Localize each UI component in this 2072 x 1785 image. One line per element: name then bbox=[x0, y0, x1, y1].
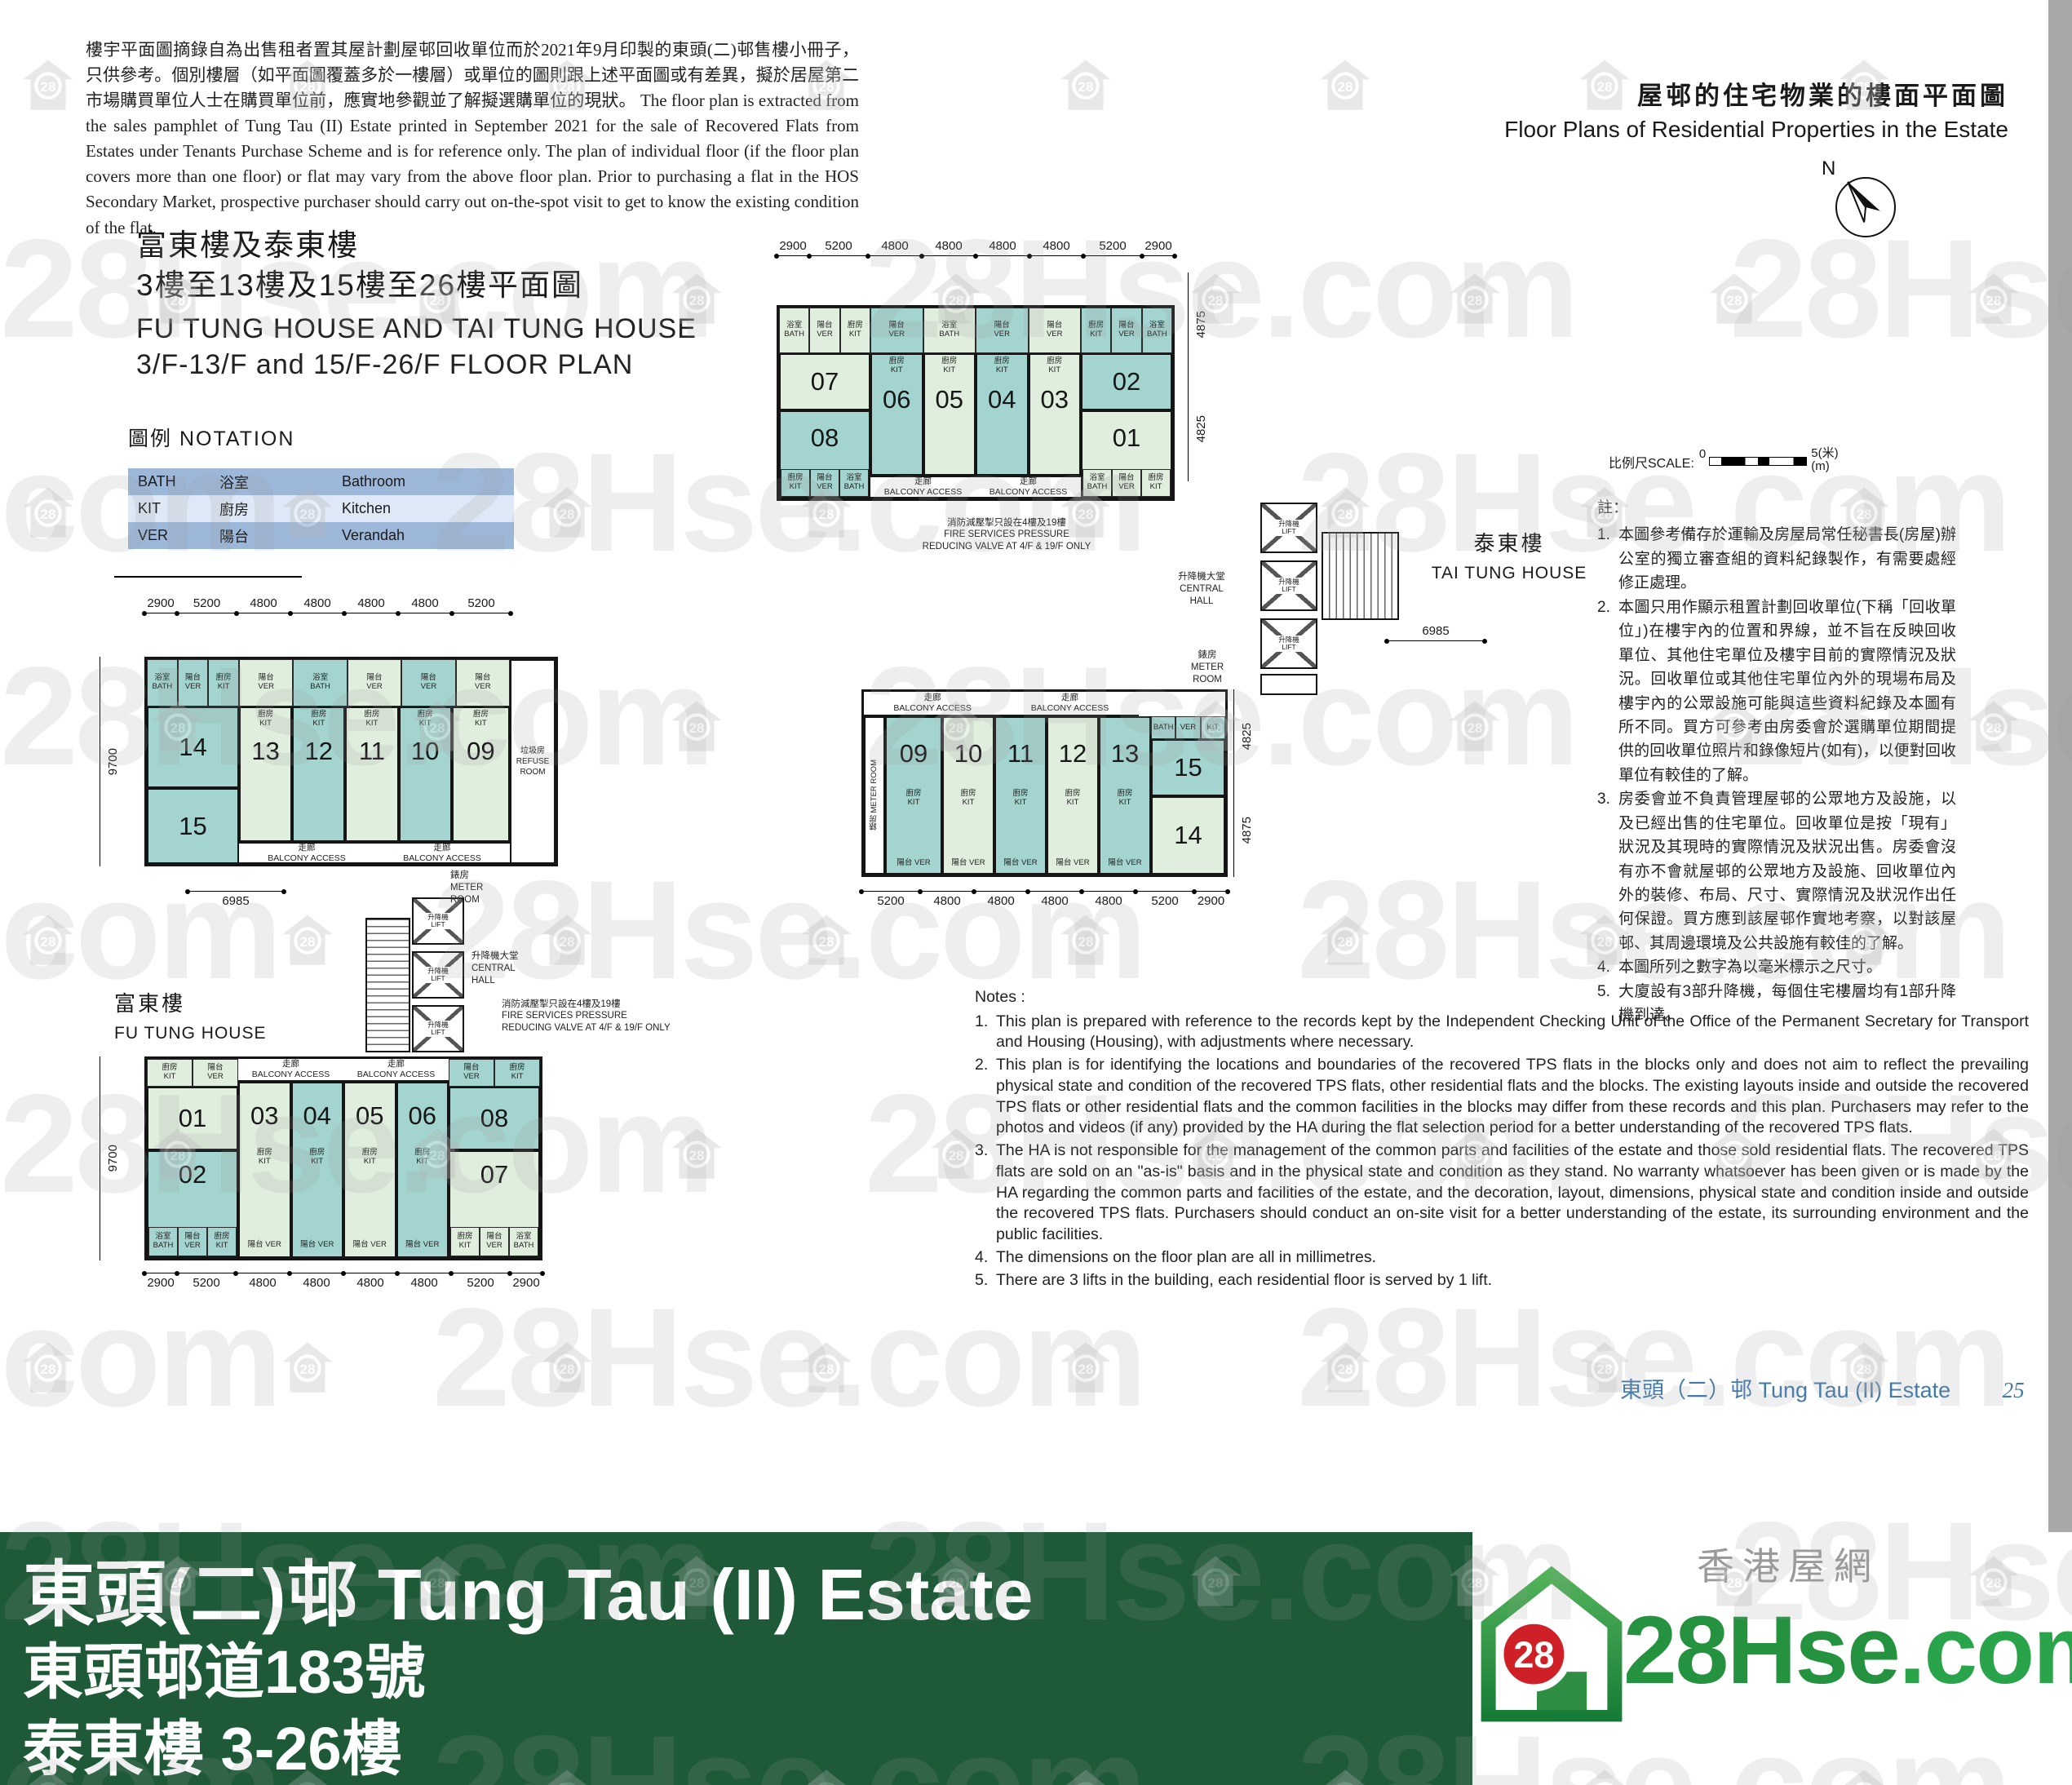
svg-text:28: 28 bbox=[1078, 934, 1094, 950]
floor-plan-page: 樓宇平面圖摘錄自為出售租者置其屋計劃屋邨回收單位而於2021年9月印製的東頭(二… bbox=[0, 0, 2072, 1785]
fire-note-zh: 消防減壓掣只設在4樓及19樓 bbox=[502, 999, 714, 1010]
corridor-label: 走廊BALCONY ACCESS bbox=[268, 843, 346, 863]
notation-code: BATH bbox=[128, 473, 219, 490]
fire-note-en1: FIRE SERVICES PRESSURE bbox=[897, 529, 1116, 540]
notation-legend: 圖例 NOTATION BATH 浴室 Bathroom KIT 廚房 Kitc… bbox=[128, 423, 514, 549]
dim-label: 4800 bbox=[398, 596, 452, 613]
title-zh-2: 3樓至13樓及15樓至26樓平面圖 bbox=[136, 270, 697, 300]
dim-value: 6985 bbox=[1422, 624, 1449, 638]
ver-room-cell: 陽台VER bbox=[976, 308, 1029, 353]
notes-en-heading: Notes : bbox=[975, 987, 2029, 1008]
scale-bar: 比例尺SCALE: 0 5(米) (m) bbox=[1609, 447, 1839, 473]
unit-number: 04 bbox=[303, 1101, 331, 1131]
title-en-1: FU TUNG HOUSE AND TAI TUNG HOUSE bbox=[136, 315, 697, 343]
room-label-en: VER bbox=[1047, 330, 1063, 339]
dim-label: 2900 bbox=[510, 1273, 542, 1290]
balcony-access-corridor: 走廊BALCONY ACCESS 走廊BALCONY ACCESS bbox=[239, 842, 510, 864]
room-label-zh: 廚房 bbox=[414, 1148, 430, 1157]
dim-value: 4800 bbox=[989, 239, 1016, 253]
room-label-zh: 陽台 bbox=[1003, 858, 1019, 867]
unit-number: 13 bbox=[251, 737, 279, 766]
dim-label: 4875 bbox=[1189, 272, 1213, 377]
fire-services-note-tai-tung: 消防減壓掣只設在4樓及19樓 FIRE SERVICES PRESSURE RE… bbox=[897, 517, 1116, 552]
28hse-watermark-text: 28Hse.com bbox=[432, 1277, 1144, 1438]
dim-label: 4875 bbox=[1234, 783, 1259, 877]
room-label-zh: 廚房 bbox=[941, 357, 957, 365]
notation-row-ver: VER 陽台 Verandah bbox=[128, 522, 514, 549]
note-zh-2: 2.本圖只用作顯示租置計劃回收單位(下稱「回收單位」)在樓宇內的位置和界線，並不… bbox=[1597, 596, 1956, 788]
room-label-en: VER bbox=[914, 858, 931, 867]
svg-text:28: 28 bbox=[1338, 934, 1353, 950]
dim-value: 2900 bbox=[1198, 894, 1224, 908]
meter-zh: 錶房 bbox=[870, 816, 879, 831]
note-zh-1: 1.本圖參考備存於運輸及房屋局常任秘書長(房屋)辦公室的獨立審查組的資料紀錄製作… bbox=[1597, 523, 1956, 595]
dim-label: 5200 bbox=[452, 596, 511, 613]
corner-title-en: Floor Plans of Residential Properties in… bbox=[1437, 117, 2008, 143]
dim-value: 5200 bbox=[467, 596, 494, 610]
tai-tung-bottom-dimensions: 5200 4800 4800 4800 4800 5200 2900 bbox=[861, 891, 1228, 912]
page-title: 富東樓及泰東樓 3樓至13樓及15樓至26樓平面圖 FU TUNG HOUSE … bbox=[136, 230, 697, 387]
dim-label: 4800 bbox=[976, 239, 1029, 256]
room-label-en: KIT bbox=[1090, 330, 1102, 339]
bath-room-cell: 浴室BATH bbox=[839, 469, 869, 497]
room-label-en: VER bbox=[1074, 858, 1090, 867]
note-number: 1. bbox=[1597, 523, 1618, 595]
scale-five: 5(米) bbox=[1811, 447, 1838, 460]
notation-en: Bathroom bbox=[342, 473, 514, 490]
dim-value: 4800 bbox=[987, 894, 1014, 908]
fu-tung-lower-left-dimension: 9700 bbox=[100, 1056, 125, 1260]
meter-zh: 錶房 bbox=[450, 870, 524, 882]
fu-tung-upper-dimensions: 2900 5200 4800 4800 4800 4800 5200 bbox=[144, 592, 511, 613]
disclaimer-paragraph: 樓宇平面圖摘錄自為出售租者置其屋計劃屋邨回收單位而於2021年9月印製的東頭(二… bbox=[86, 38, 859, 241]
svg-text:28: 28 bbox=[1986, 720, 2002, 736]
dim-value: 4875 bbox=[1240, 817, 1254, 844]
tai-tung-upper-wing: 浴室BATH 陽台VER 廚房KIT 07 08 廚房KIT 陽台VER 浴室B… bbox=[777, 305, 1175, 501]
note-en-4: 4.The dimensions on the floor plan are a… bbox=[975, 1247, 2029, 1269]
corridor-en: BALCONY ACCESS bbox=[884, 487, 963, 497]
kit-room-cell: 廚房KIT bbox=[494, 1059, 540, 1087]
note-number: 3. bbox=[975, 1141, 996, 1246]
svg-text:28: 28 bbox=[41, 79, 56, 95]
bath-room-cell: 浴室BATH bbox=[148, 1227, 178, 1256]
dim-label: 4800 bbox=[974, 891, 1028, 908]
28hse-house-watermark-icon: 28 bbox=[1447, 698, 1503, 754]
scale-zero: 0 bbox=[1699, 447, 1706, 461]
unit-02: 02 浴室BATH 陽台VER 廚房KIT bbox=[147, 1150, 238, 1258]
room-label-en: KIT bbox=[908, 798, 920, 807]
dim-value: 9700 bbox=[106, 1145, 120, 1172]
bath-room-cell: 浴室BATH bbox=[509, 1227, 538, 1256]
corridor-label: 走廊BALCONY ACCESS bbox=[403, 843, 481, 863]
dim-label: 4825 bbox=[1234, 689, 1259, 783]
note-number: 5. bbox=[975, 1270, 996, 1291]
room-label-en: VER bbox=[258, 683, 274, 692]
room-label-zh: 廚房 bbox=[364, 710, 379, 719]
28hse-house-watermark-icon: 28 bbox=[1447, 271, 1503, 326]
dim-value: 6985 bbox=[222, 894, 249, 908]
lift-shaft-tai-tung: 升降機LIFT 升降機LIFT 升降機LIFT bbox=[1260, 503, 1317, 669]
kit-room-label: 廚房KIT bbox=[994, 357, 1010, 375]
estate-banner: 東頭(二)邨 Tung Tau (II) Estate 東頭邨道183號 泰東樓… bbox=[0, 1532, 1472, 1785]
lift-en: LIFT bbox=[431, 1028, 445, 1036]
dim-value: 9700 bbox=[106, 748, 120, 775]
28hse-house-watermark-icon: 28 bbox=[1707, 271, 1762, 326]
dim-value: 4800 bbox=[250, 596, 277, 610]
unit-07: 07 廚房KIT 陽台VER 浴室BATH bbox=[449, 1150, 540, 1258]
room-label-en: BATH bbox=[153, 1242, 174, 1251]
dim-label: 4800 bbox=[290, 596, 344, 613]
28hse-house-icon: 28 bbox=[1478, 1562, 1625, 1725]
unit-05: 05廚房KIT陽台 VER bbox=[343, 1082, 396, 1258]
ver-room-cell: 陽台VER bbox=[348, 659, 401, 706]
fu-tung-upper-wing: 浴室BATH 陽台VER 廚房KIT 14 15 陽台VER 浴室BATH 陽台… bbox=[144, 657, 558, 866]
dim-value: 4800 bbox=[1043, 239, 1069, 253]
corridor-label: 走廊BALCONY ACCESS bbox=[990, 476, 1068, 497]
room-label-zh: 廚房 bbox=[362, 1148, 378, 1157]
room-label-zh: 廚房 bbox=[257, 1148, 272, 1157]
bath-room-cell: 浴室BATH bbox=[779, 308, 809, 353]
dim-label: 4800 bbox=[397, 1273, 451, 1290]
ver-room-label: 陽台 VER bbox=[1056, 859, 1089, 868]
dim-label: 5200 bbox=[177, 1273, 236, 1290]
footer-estate-en: Tung Tau (II) Estate bbox=[1759, 1378, 1951, 1402]
lift-cell: 升降機LIFT bbox=[412, 897, 464, 945]
room-label-en: KIT bbox=[312, 719, 325, 728]
room-label-zh: 陽台 bbox=[248, 1240, 263, 1249]
hall-en2: HALL bbox=[1149, 596, 1255, 608]
title-en-2: 3/F-13/F and 15/F-26/F FLOOR PLAN bbox=[136, 351, 697, 379]
28hse-house-watermark-icon: 28 bbox=[799, 1340, 854, 1395]
dim-value: 4825 bbox=[1194, 415, 1208, 442]
room-label-en: VER bbox=[423, 1240, 440, 1249]
ver-room-cell: 陽台VER bbox=[809, 308, 839, 353]
28hse-house-watermark-icon: 28 bbox=[1058, 57, 1113, 113]
room-label-en: BATH bbox=[844, 483, 865, 492]
28hse-house-watermark-icon: 28 bbox=[20, 1340, 76, 1395]
ver-room-cell: 陽台VER bbox=[178, 1227, 207, 1256]
room-label-en: KIT bbox=[311, 1157, 323, 1166]
svg-text:28: 28 bbox=[689, 1148, 705, 1163]
unit-number: 09 bbox=[467, 737, 494, 766]
corner-title-zh: 屋邨的住宅物業的樓面平面圖 bbox=[1437, 75, 2008, 112]
corridor-zh: 走廊 bbox=[1020, 476, 1037, 486]
note-number: 2. bbox=[1597, 596, 1618, 788]
room-label-en: KIT bbox=[943, 365, 955, 374]
lift-cell: 升降機LIFT bbox=[1260, 560, 1317, 611]
scale-unit-en: (m) bbox=[1811, 460, 1838, 473]
footer-page-number: 25 bbox=[2003, 1378, 2025, 1402]
lift-label: 升降機LIFT bbox=[426, 913, 450, 930]
room-label-en: KIT bbox=[1119, 798, 1131, 807]
room-label-en: KIT bbox=[475, 719, 487, 728]
svg-text:28: 28 bbox=[689, 720, 705, 736]
room-label-zh: 陽台 bbox=[1108, 858, 1123, 867]
kit-room-cell: 廚房KIT bbox=[1141, 469, 1171, 497]
unit-number: 05 bbox=[356, 1101, 383, 1131]
notation-row-bath: BATH 浴室 Bathroom bbox=[128, 468, 514, 495]
logo-brand-text: 28Hse.com bbox=[1623, 1595, 2072, 1706]
ver-room-cell: 陽台VER bbox=[480, 1227, 509, 1256]
unit-number: 11 bbox=[1007, 739, 1034, 768]
balcony-access-corridor: 走廊BALCONY ACCESS 走廊BALCONY ACCESS bbox=[238, 1059, 449, 1082]
dim-label: 2900 bbox=[144, 1273, 177, 1290]
svg-text:28: 28 bbox=[560, 507, 575, 522]
room-label-en: VER bbox=[486, 1242, 503, 1251]
notation-zh: 陽台 bbox=[219, 525, 342, 547]
fire-note-zh: 消防減壓掣只設在4樓及19樓 bbox=[897, 517, 1116, 529]
dim-label: 2900 bbox=[1142, 239, 1175, 256]
unit-13: 13廚房KIT陽台 VER bbox=[1099, 716, 1151, 875]
corridor-zh: 走廊 bbox=[914, 476, 932, 486]
dim-label: 2900 bbox=[1194, 891, 1228, 908]
kit-room-label: 廚房KIT bbox=[905, 790, 921, 808]
unit-number: 01 bbox=[1113, 423, 1140, 453]
tai-tung-top-dimensions: 2900 5200 4800 4800 4800 4800 5200 2900 bbox=[777, 235, 1175, 256]
room-label-en: BATH bbox=[310, 683, 330, 692]
kit-room-label: 廚房KIT bbox=[258, 711, 273, 729]
28hse-house-watermark-icon: 28 bbox=[280, 912, 335, 968]
room-label-en: VER bbox=[475, 683, 491, 692]
unit-number: 14 bbox=[179, 733, 206, 762]
room-label-en: BATH bbox=[939, 330, 959, 339]
lift-label: 升降機LIFT bbox=[1277, 636, 1301, 653]
room-label-en: KIT bbox=[1150, 483, 1162, 492]
dim-label: 4800 bbox=[290, 1273, 343, 1290]
ver-room-cell: VER bbox=[1175, 716, 1200, 739]
room-label-en: VER bbox=[184, 1242, 201, 1251]
unit-08: 08 bbox=[449, 1087, 540, 1150]
28hse-logo: 28 bbox=[1478, 1562, 1625, 1730]
aux-dimension-tai-tung: 6985 bbox=[1387, 620, 1485, 641]
tai-tung-lower-right-dimensions: 4825 4875 bbox=[1233, 689, 1259, 877]
svg-text:28: 28 bbox=[1338, 1362, 1353, 1377]
room-label-en: KIT bbox=[164, 1073, 176, 1082]
unit-01: 01 浴室BATH 陽台VER 廚房KIT bbox=[1081, 410, 1172, 498]
unit-01: 01 bbox=[147, 1087, 238, 1150]
lift-label: 升降機LIFT bbox=[1277, 578, 1301, 595]
meter-en2: ROOM bbox=[1167, 674, 1248, 686]
fire-note-en2: REDUCING VALVE AT 4/F & 19/F ONLY bbox=[897, 541, 1116, 552]
room-label-en: VER bbox=[421, 683, 437, 692]
28hse-house-watermark-icon: 28 bbox=[1317, 57, 1373, 113]
room-label-en: VER bbox=[1180, 724, 1197, 733]
room-label-en: VER bbox=[265, 1240, 281, 1249]
room-label-en: KIT bbox=[366, 719, 379, 728]
hall-zh: 升降機大堂 bbox=[1149, 571, 1255, 583]
dim-value: 4800 bbox=[1041, 894, 1068, 908]
meter-room-label-tai-tung: 錶房 METER ROOM bbox=[1167, 649, 1248, 686]
notation-code: KIT bbox=[128, 500, 219, 517]
note-number: 4. bbox=[975, 1247, 996, 1269]
note-text: The dimensions on the floor plan are all… bbox=[996, 1247, 2029, 1269]
dim-label: 4800 bbox=[1082, 891, 1136, 908]
28hse-watermark-text: 28Hse.com bbox=[0, 1277, 279, 1438]
svg-text:28: 28 bbox=[560, 1362, 575, 1377]
room-label-zh: 廚房 bbox=[1047, 357, 1062, 365]
28hse-house-watermark-icon: 28 bbox=[20, 912, 76, 968]
28hse-house-watermark-icon: 28 bbox=[1577, 1767, 1632, 1785]
lift-label: 升降機LIFT bbox=[1277, 520, 1301, 537]
room-label-zh: 陽台 bbox=[353, 1240, 369, 1249]
fu-tung-upper-left-dimension: 9700 bbox=[100, 657, 125, 866]
corridor-label: 走廊BALCONY ACCESS bbox=[357, 1059, 436, 1079]
room-label-zh: 廚房 bbox=[258, 710, 273, 719]
unit-number: 06 bbox=[409, 1101, 436, 1131]
svg-text:28: 28 bbox=[41, 1362, 56, 1377]
unit-07: 07 bbox=[779, 353, 870, 410]
central-hall-label-tai-tung: 升降機大堂 CENTRAL HALL bbox=[1149, 571, 1255, 608]
unit-number: 11 bbox=[359, 737, 385, 766]
ver-room-label: 陽台 VER bbox=[405, 1241, 439, 1250]
unit-number: 15 bbox=[1174, 753, 1202, 782]
dim-value: 4800 bbox=[410, 1276, 437, 1290]
dim-value: 4825 bbox=[1240, 723, 1254, 750]
unit-number: 01 bbox=[179, 1104, 206, 1133]
notation-row-kit: KIT 廚房 Kitchen bbox=[128, 495, 514, 522]
room-label-en: VER bbox=[185, 683, 201, 692]
note-text: 房委會並不負責管理屋邨的公眾地方及設施，以及已經出售的住宅單位。回收單位是按「現… bbox=[1618, 787, 1956, 955]
dim-label: 4800 bbox=[343, 1273, 397, 1290]
corridor-zh: 走廊 bbox=[924, 693, 941, 702]
ver-room-cell: 陽台VER bbox=[810, 469, 839, 497]
balcony-access-corridor: 走廊BALCONY ACCESS 走廊BALCONY ACCESS bbox=[864, 692, 1139, 716]
corridor-label: 走廊BALCONY ACCESS bbox=[893, 693, 972, 713]
corridor-label: 走廊BALCONY ACCESS bbox=[884, 476, 963, 497]
28hse-house-watermark-icon: 28 bbox=[669, 698, 724, 754]
tai-tung-house-label: 泰東樓 TAI TUNG HOUSE bbox=[1415, 527, 1603, 583]
dim-value: 4800 bbox=[935, 239, 962, 253]
room-label-en: VER bbox=[1126, 858, 1142, 867]
notation-en: Verandah bbox=[342, 527, 514, 544]
ver-room-cell: 陽台VER bbox=[401, 659, 455, 706]
room-label-zh: 廚房 bbox=[994, 357, 1010, 365]
28hse-house-watermark-icon: 28 bbox=[669, 1126, 724, 1181]
kit-room-cell: 廚房KIT bbox=[450, 1227, 480, 1256]
kit-room-cell: 廚房KIT bbox=[207, 1227, 237, 1256]
ver-room-cell: 陽台VER bbox=[449, 1059, 494, 1087]
fire-note-en1: FIRE SERVICES PRESSURE bbox=[502, 1010, 714, 1021]
dim-value: 4800 bbox=[411, 596, 438, 610]
dim-value: 2900 bbox=[512, 1276, 539, 1290]
notation-title-zh: 圖例 bbox=[128, 427, 172, 450]
dim-value: 5200 bbox=[193, 1276, 219, 1290]
note-zh-3: 3.房委會並不負責管理屋邨的公眾地方及設施，以及已經出售的住宅單位。回收單位是按… bbox=[1597, 787, 1956, 955]
fire-services-note-fu-tung: 消防減壓掣只設在4樓及19樓 FIRE SERVICES PRESSURE RE… bbox=[502, 999, 714, 1034]
dim-label: 2900 bbox=[144, 596, 177, 613]
unit-number: 08 bbox=[811, 423, 839, 453]
28hse-house-watermark-icon: 28 bbox=[1317, 912, 1373, 968]
dim-value: 5200 bbox=[877, 894, 904, 908]
building-name-en: FU TUNG HOUSE bbox=[114, 1024, 266, 1043]
room-label-en: VER bbox=[817, 330, 833, 339]
kit-room-cell: 廚房KIT bbox=[1081, 308, 1111, 353]
lift-en: LIFT bbox=[431, 920, 445, 928]
room-label-zh: 陽台 bbox=[1056, 858, 1071, 867]
hall-zh: 升降機大堂 bbox=[472, 950, 561, 963]
dim-value: 2900 bbox=[779, 239, 806, 253]
kit-room-label: 廚房KIT bbox=[941, 357, 957, 375]
dim-label: 2900 bbox=[777, 239, 809, 256]
unit-number: 12 bbox=[1059, 739, 1087, 768]
room-label-en: KIT bbox=[1067, 798, 1079, 807]
corridor-zh: 走廊 bbox=[1061, 693, 1078, 702]
room-label-zh: 廚房 bbox=[309, 1148, 325, 1157]
room-label-en: KIT bbox=[1206, 724, 1219, 733]
28hse-house-watermark-icon: 28 bbox=[1317, 1340, 1373, 1395]
28hse-house-watermark-icon: 28 bbox=[20, 485, 76, 540]
room-label-en: VER bbox=[1118, 330, 1135, 339]
unit-number: 02 bbox=[179, 1160, 206, 1189]
refuse-en2: ROOM bbox=[516, 767, 550, 777]
svg-text:28: 28 bbox=[300, 1362, 316, 1377]
building-name-en: TAI TUNG HOUSE bbox=[1415, 564, 1603, 583]
corner-title: 屋邨的住宅物業的樓面平面圖 Floor Plans of Residential… bbox=[1437, 75, 2008, 143]
room-label-en: VER bbox=[1021, 858, 1038, 867]
dim-label: 5200 bbox=[177, 596, 237, 613]
unit-15: 15 bbox=[1151, 739, 1225, 796]
unit-03: 廚房KIT03 bbox=[1029, 353, 1082, 476]
corridor-en: BALCONY ACCESS bbox=[990, 487, 1068, 497]
lift-cell: 升降機LIFT bbox=[412, 1005, 464, 1052]
unit-10: 廚房KIT10 bbox=[399, 706, 452, 842]
svg-text:28: 28 bbox=[1727, 293, 1742, 308]
room-label-zh: 廚房 bbox=[889, 357, 905, 365]
lift-en: LIFT bbox=[1282, 585, 1295, 593]
footer-estate-zh: 東頭（二）邨 bbox=[1620, 1378, 1752, 1402]
room-label-en: KIT bbox=[218, 683, 230, 692]
note-zh-4: 4.本圖所列之數字為以毫米標示之尺寸。 bbox=[1597, 955, 1956, 979]
kit-room-label: 廚房KIT bbox=[418, 711, 433, 729]
ver-room-cell: 陽台VER bbox=[1029, 308, 1082, 353]
room-label-en: KIT bbox=[790, 483, 802, 492]
28hse-house-watermark-icon: 28 bbox=[280, 1340, 335, 1395]
svg-text:28: 28 bbox=[819, 934, 835, 950]
refuse-en1: REFUSE bbox=[516, 756, 550, 767]
room-label-en: KIT bbox=[963, 798, 975, 807]
kit-room-label: 廚房KIT bbox=[309, 1149, 325, 1167]
unit-08: 08 廚房KIT 陽台VER 浴室BATH bbox=[779, 410, 870, 498]
fu-tung-lower-wing: 廚房KIT 陽台VER 01 02 浴室BATH 陽台VER 廚房KIT 走廊B… bbox=[144, 1056, 542, 1260]
note-en-2: 2.This plan is for identifying the locat… bbox=[975, 1055, 2029, 1139]
room-label-en: KIT bbox=[459, 1242, 472, 1251]
room-label-zh: 陽台 bbox=[951, 858, 967, 867]
dim-value: 4800 bbox=[933, 894, 960, 908]
dim-value: 2900 bbox=[147, 596, 174, 610]
hall-en1: CENTRAL bbox=[472, 963, 561, 975]
page-edge-shadow bbox=[2048, 0, 2072, 1532]
kit-room-cell: KIT bbox=[1201, 716, 1225, 739]
ver-room-cell: 陽台VER bbox=[178, 659, 209, 706]
unit-04: 04廚房KIT陽台 VER bbox=[291, 1082, 344, 1258]
unit-05: 廚房KIT05 bbox=[923, 353, 976, 476]
corridor-en: BALCONY ACCESS bbox=[1031, 703, 1109, 713]
divider-line bbox=[114, 576, 302, 578]
svg-text:28: 28 bbox=[1078, 1362, 1094, 1377]
corridor-en: BALCONY ACCESS bbox=[252, 1070, 330, 1079]
dim-label: 4800 bbox=[922, 239, 976, 256]
28hse-house-watermark-icon: 28 bbox=[539, 485, 595, 540]
unit-09: 09廚房KIT陽台 VER bbox=[885, 716, 942, 875]
room-label-en: KIT bbox=[259, 1157, 271, 1166]
dim-label: 4800 bbox=[236, 1273, 290, 1290]
kit-room-label: 廚房KIT bbox=[960, 790, 976, 808]
room-label-en: BATH bbox=[1087, 483, 1108, 492]
28hse-house-watermark-icon: 28 bbox=[539, 1340, 595, 1395]
notation-en: Kitchen bbox=[342, 500, 514, 517]
tai-tung-right-dimensions: 4875 4825 bbox=[1188, 272, 1213, 481]
dim-label: 4800 bbox=[1029, 239, 1083, 256]
